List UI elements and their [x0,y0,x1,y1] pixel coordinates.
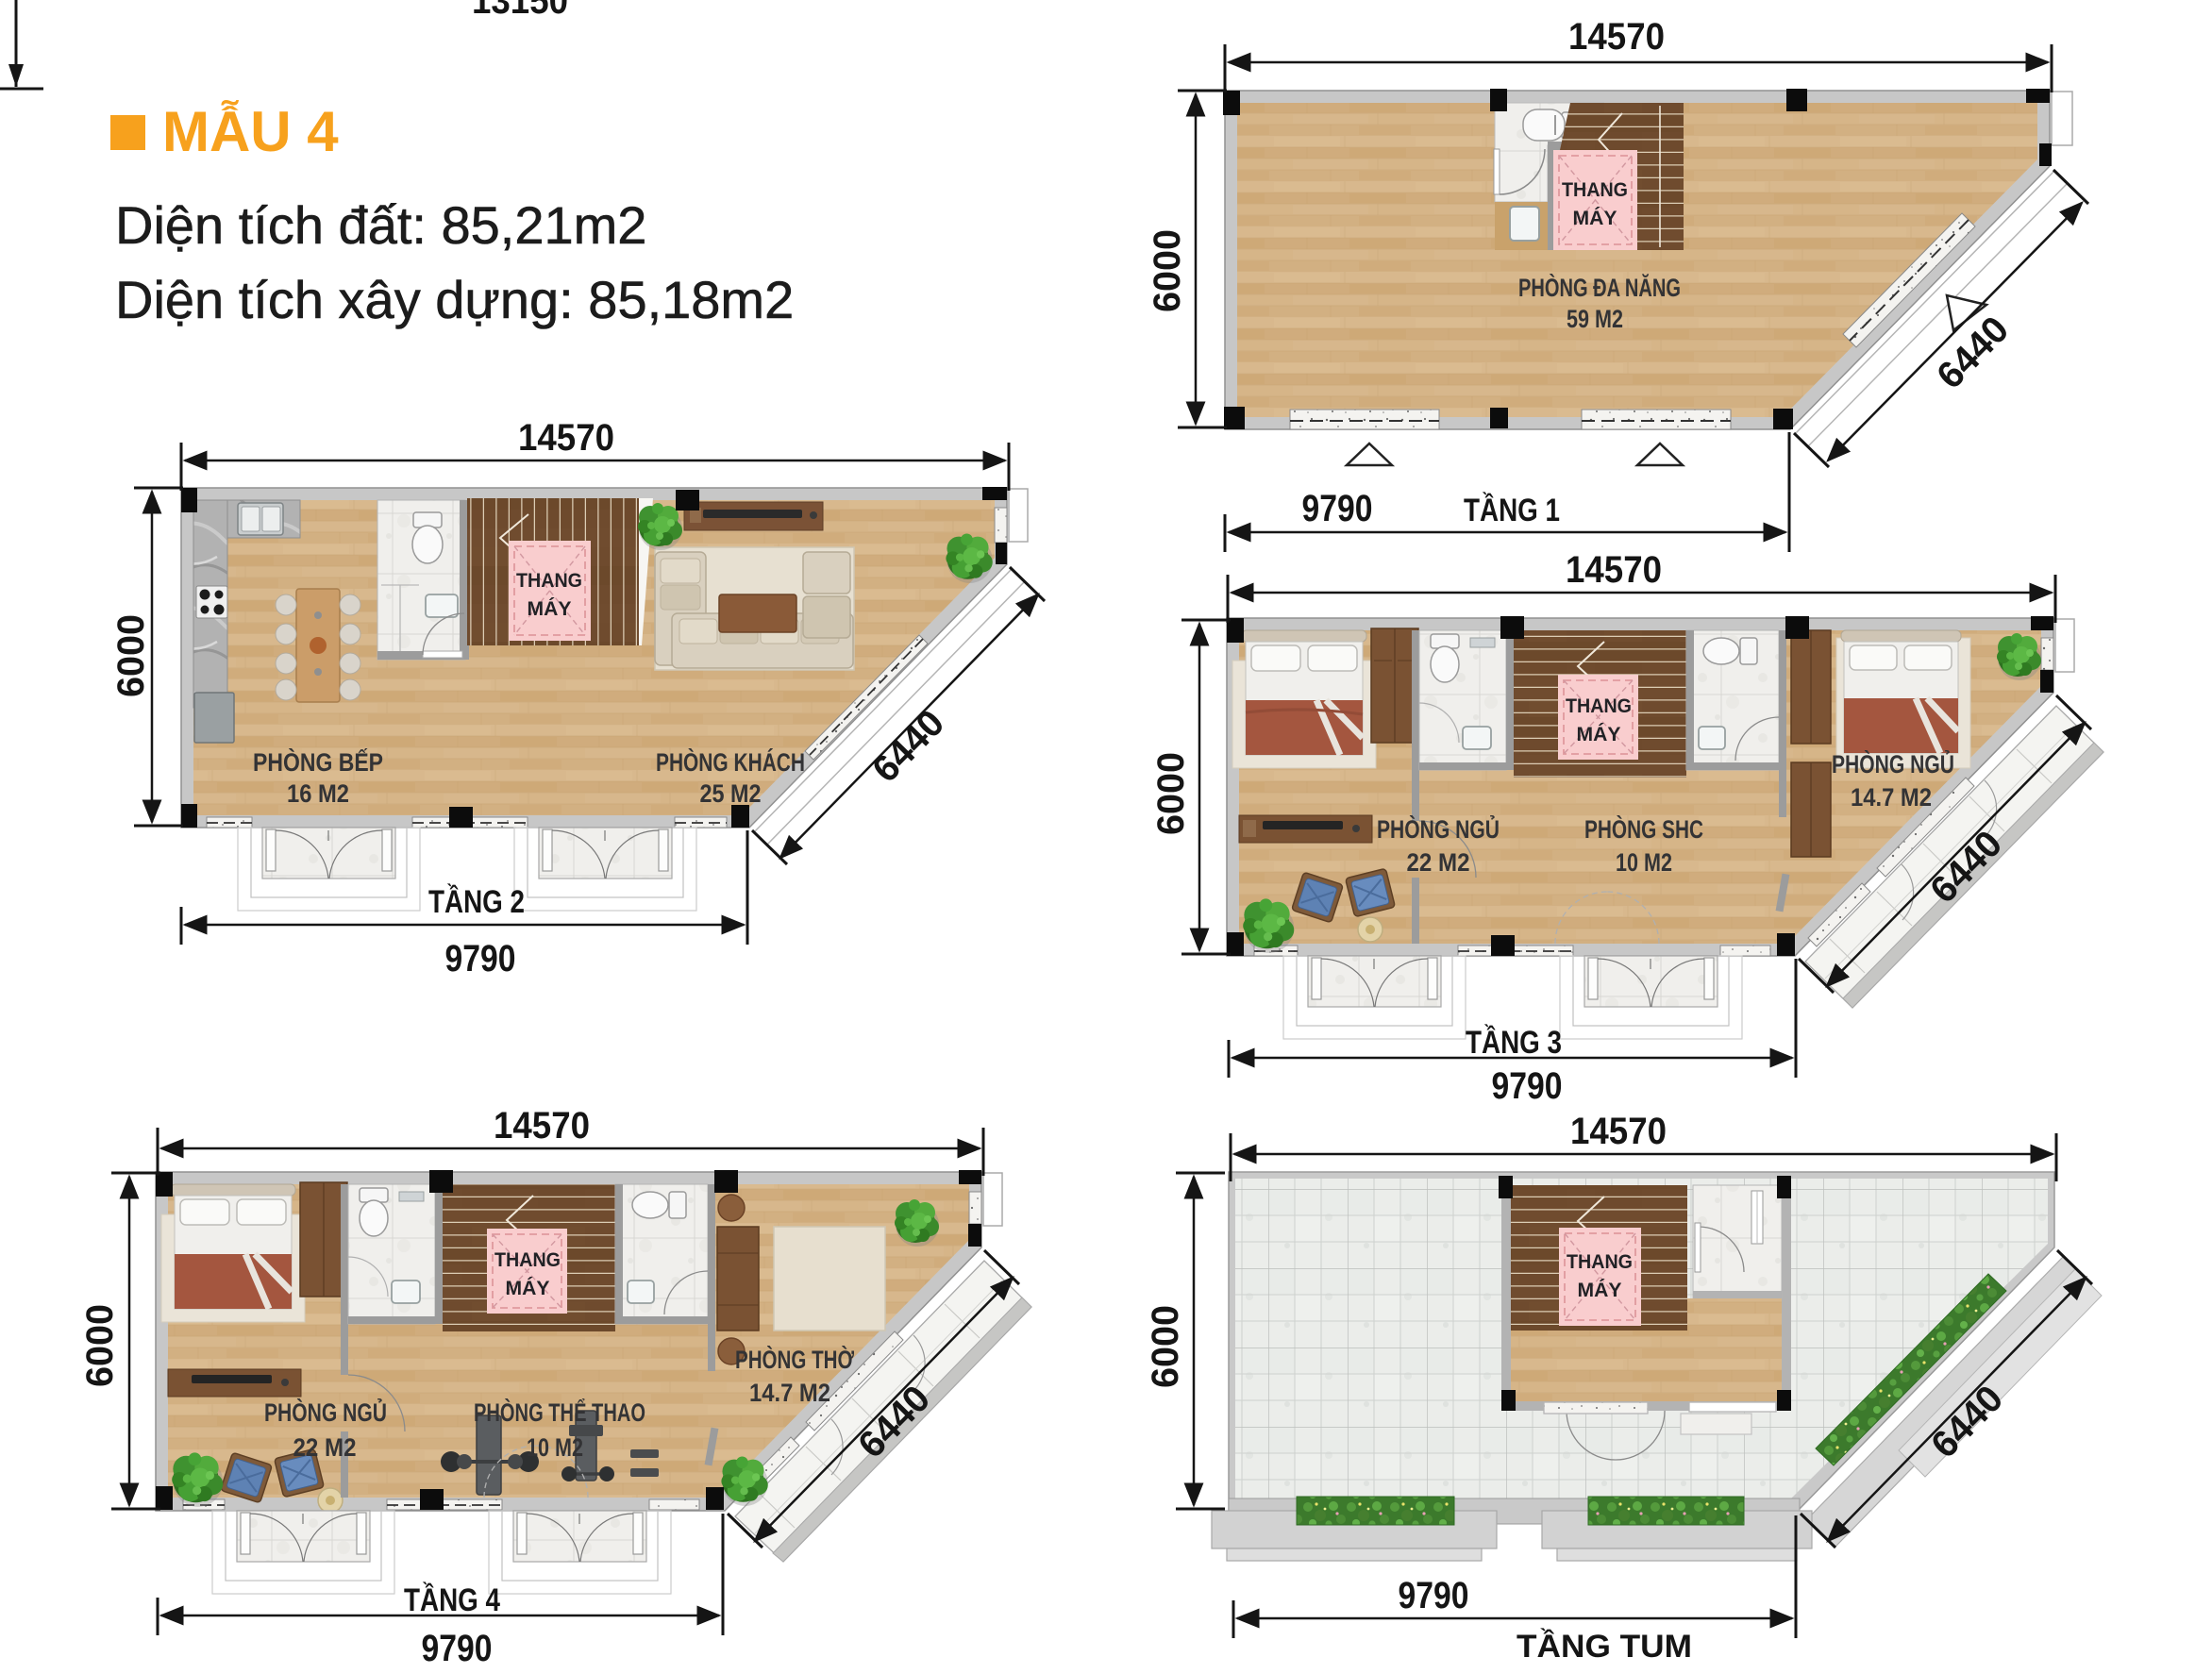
svg-text:TẦNG TUM: TẦNG TUM [1517,1629,1692,1665]
svg-text:14.7 M2: 14.7 M2 [749,1379,830,1407]
svg-text:PHÒNG NGỦ: PHÒNG NGỦ [1377,813,1500,844]
svg-text:14570: 14570 [1570,1111,1667,1152]
svg-text:THANG: THANG [1567,1251,1633,1273]
svg-text:PHÒNG THỜ: PHÒNG THỜ [735,1345,854,1374]
svg-text:22 M2: 22 M2 [1407,848,1470,877]
svg-text:25 M2: 25 M2 [700,779,762,808]
svg-text:9790: 9790 [422,1628,493,1669]
svg-text:14570: 14570 [494,1105,590,1147]
svg-text:6000: 6000 [1150,752,1192,835]
svg-text:TẦNG 4: TẦNG 4 [404,1582,500,1618]
svg-text:PHÒNG NGỦ: PHÒNG NGỦ [1832,748,1954,778]
svg-text:9790: 9790 [445,938,516,979]
svg-text:6000: 6000 [110,614,152,697]
svg-text:6000: 6000 [1147,229,1188,312]
svg-text:TẦNG 1: TẦNG 1 [1464,493,1560,528]
svg-text:14570: 14570 [518,417,614,459]
svg-text:10 M2: 10 M2 [1616,848,1672,877]
svg-text:13150: 13150 [472,0,568,22]
svg-text:9790: 9790 [1492,1065,1563,1107]
svg-text:Diện tích đất: 85,21m2: Diện tích đất: 85,21m2 [115,195,646,255]
svg-text:16 M2: 16 M2 [287,779,349,808]
svg-text:MÁY: MÁY [1578,1280,1622,1301]
svg-text:22 M2: 22 M2 [293,1433,357,1462]
svg-text:TẦNG 2: TẦNG 2 [428,884,525,920]
svg-text:PHÒNG KHÁCH: PHÒNG KHÁCH [656,747,805,777]
svg-text:6000: 6000 [79,1304,121,1387]
svg-text:MẪU 4: MẪU 4 [162,100,339,163]
svg-text:MÁY: MÁY [506,1278,550,1299]
svg-text:MÁY: MÁY [1573,208,1617,229]
svg-text:9790: 9790 [1399,1575,1469,1616]
svg-text:TẦNG 3: TẦNG 3 [1466,1025,1562,1061]
svg-text:MÁY: MÁY [528,598,572,620]
svg-text:14570: 14570 [1568,16,1665,58]
svg-text:14.7 M2: 14.7 M2 [1851,783,1932,812]
svg-text:MÁY: MÁY [1577,724,1621,745]
svg-text:PHÒNG THỂ THAO: PHÒNG THỂ THAO [474,1398,645,1427]
svg-text:THANG: THANG [494,1249,561,1271]
svg-text:59 M2: 59 M2 [1567,305,1623,333]
svg-text:14570: 14570 [1566,549,1662,591]
svg-text:6000: 6000 [1145,1305,1186,1388]
svg-text:Diện tích xây dựng: 85,18m2: Diện tích xây dựng: 85,18m2 [115,270,794,329]
svg-text:9790: 9790 [1302,488,1373,529]
svg-text:PHÒNG ĐA NĂNG: PHÒNG ĐA NĂNG [1518,273,1681,302]
svg-text:THANG: THANG [1562,179,1628,201]
svg-text:PHÒNG BẾP: PHÒNG BẾP [253,747,383,777]
svg-text:THANG: THANG [516,570,582,592]
svg-text:PHÒNG SHC: PHÒNG SHC [1584,814,1703,844]
svg-text:THANG: THANG [1566,695,1632,717]
svg-text:10 M2: 10 M2 [527,1433,583,1462]
svg-text:PHÒNG NGỦ: PHÒNG NGỦ [264,1397,387,1427]
